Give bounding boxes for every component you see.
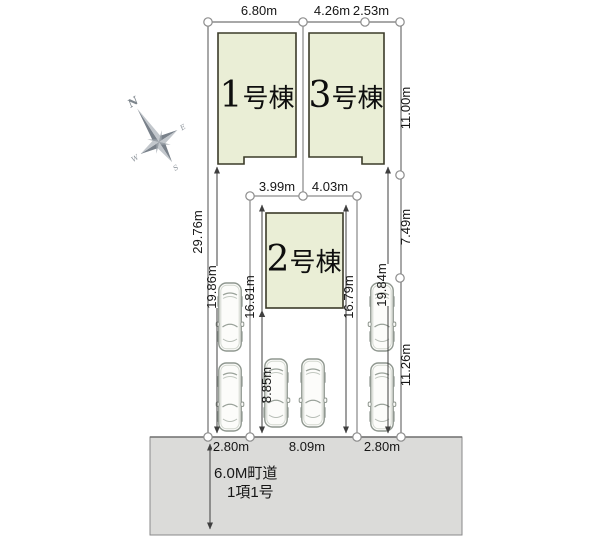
dim-right-parking: 19.84m <box>374 263 389 306</box>
dim-bottom-1: 2.80m <box>213 439 249 454</box>
dim-top-3: 2.53m <box>353 3 389 18</box>
dim-mid-parking: 8.85m <box>259 367 274 403</box>
compass-north-label: N <box>125 93 142 110</box>
road-label-line1: 6.0M町道 <box>214 465 277 482</box>
dim-bottom-3: 2.80m <box>364 439 400 454</box>
dim-right-3: 11.26m <box>398 344 413 386</box>
corner-marker <box>299 18 307 26</box>
corner-marker <box>361 18 369 26</box>
site-plan-page: 6.0M町道 1項1号 1号棟 3号棟 2号棟 6. <box>0 0 600 543</box>
car-top-view <box>368 363 396 431</box>
dim-right-1: 11.00m <box>398 87 413 129</box>
compass-south-label: S <box>172 163 181 172</box>
buildings: 1号棟 3号棟 2号棟 <box>218 33 384 308</box>
compass-east-label: E <box>178 123 187 133</box>
corner-marker <box>204 18 212 26</box>
corner-marker <box>397 433 405 441</box>
dim-top-1: 6.80m <box>241 3 277 18</box>
corner-marker <box>353 433 361 441</box>
corner-marker <box>353 192 361 200</box>
site-plan-drawing: 6.0M町道 1項1号 1号棟 3号棟 2号棟 6. <box>0 0 600 543</box>
dim-left-parking: 19.86m <box>204 265 219 308</box>
dim-inner-1: 3.99m <box>259 179 295 194</box>
dim-top-2: 4.26m <box>314 3 350 18</box>
compass-star <box>119 96 191 174</box>
corner-marker <box>299 192 307 200</box>
dim-b2-left: 16.81m <box>242 275 257 318</box>
corner-marker <box>396 274 404 282</box>
corner-marker <box>396 171 404 179</box>
corner-marker <box>246 433 254 441</box>
car-top-view <box>216 363 244 431</box>
road-label-line2: 1項1号 <box>227 484 274 501</box>
arrowhead <box>259 310 265 317</box>
corner-marker <box>396 18 404 26</box>
dim-b2-right: 16.79m <box>341 275 356 318</box>
compass-rose: N E S W <box>102 80 203 189</box>
compass-west-label: W <box>130 153 141 164</box>
corner-marker <box>204 433 212 441</box>
car-top-view <box>216 283 244 351</box>
dim-left: 29.76m <box>190 210 205 253</box>
dim-right-2: 7.49m <box>398 209 413 245</box>
car-top-view <box>299 359 327 427</box>
dim-bottom-2: 8.09m <box>289 439 325 454</box>
dim-inner-2: 4.03m <box>312 179 348 194</box>
corner-marker <box>246 192 254 200</box>
